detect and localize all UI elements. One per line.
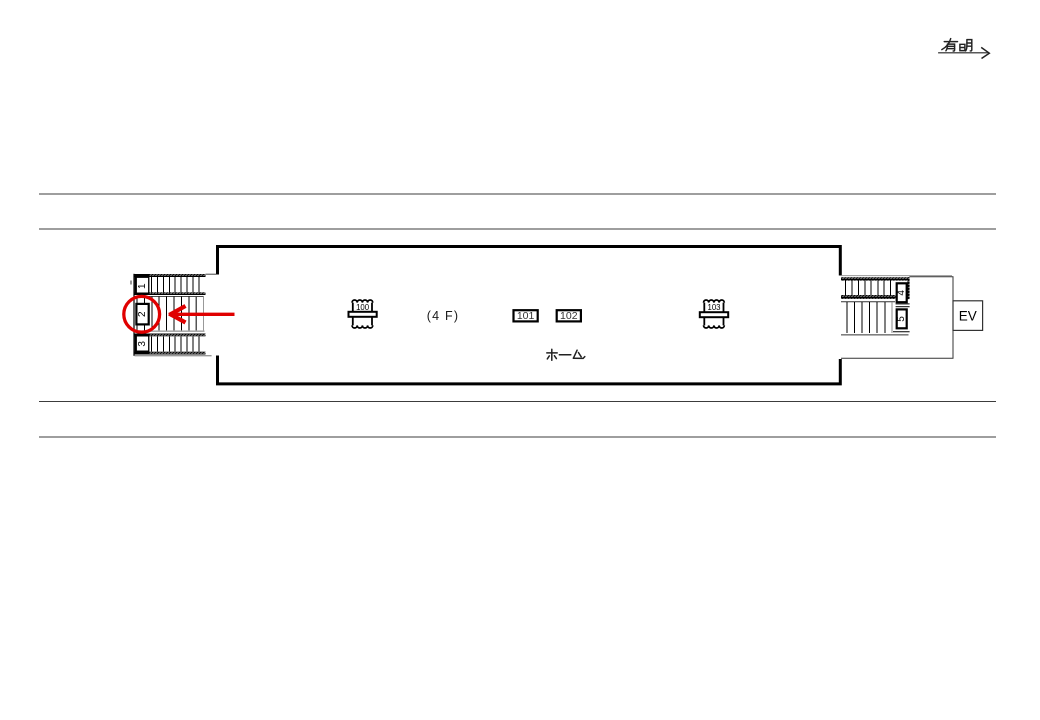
svg-text:(4 F): (4 F): [427, 309, 459, 323]
svg-text:5: 5: [896, 316, 907, 322]
svg-text:4: 4: [896, 290, 907, 296]
svg-text:3: 3: [137, 341, 148, 347]
svg-text:100: 100: [356, 303, 370, 312]
svg-text:1: 1: [137, 283, 148, 289]
svg-text:103: 103: [707, 303, 720, 312]
svg-text:2: 2: [137, 311, 148, 317]
svg-text:101: 101: [517, 310, 535, 322]
svg-text:EV: EV: [959, 309, 977, 324]
svg-text:102: 102: [560, 310, 578, 322]
